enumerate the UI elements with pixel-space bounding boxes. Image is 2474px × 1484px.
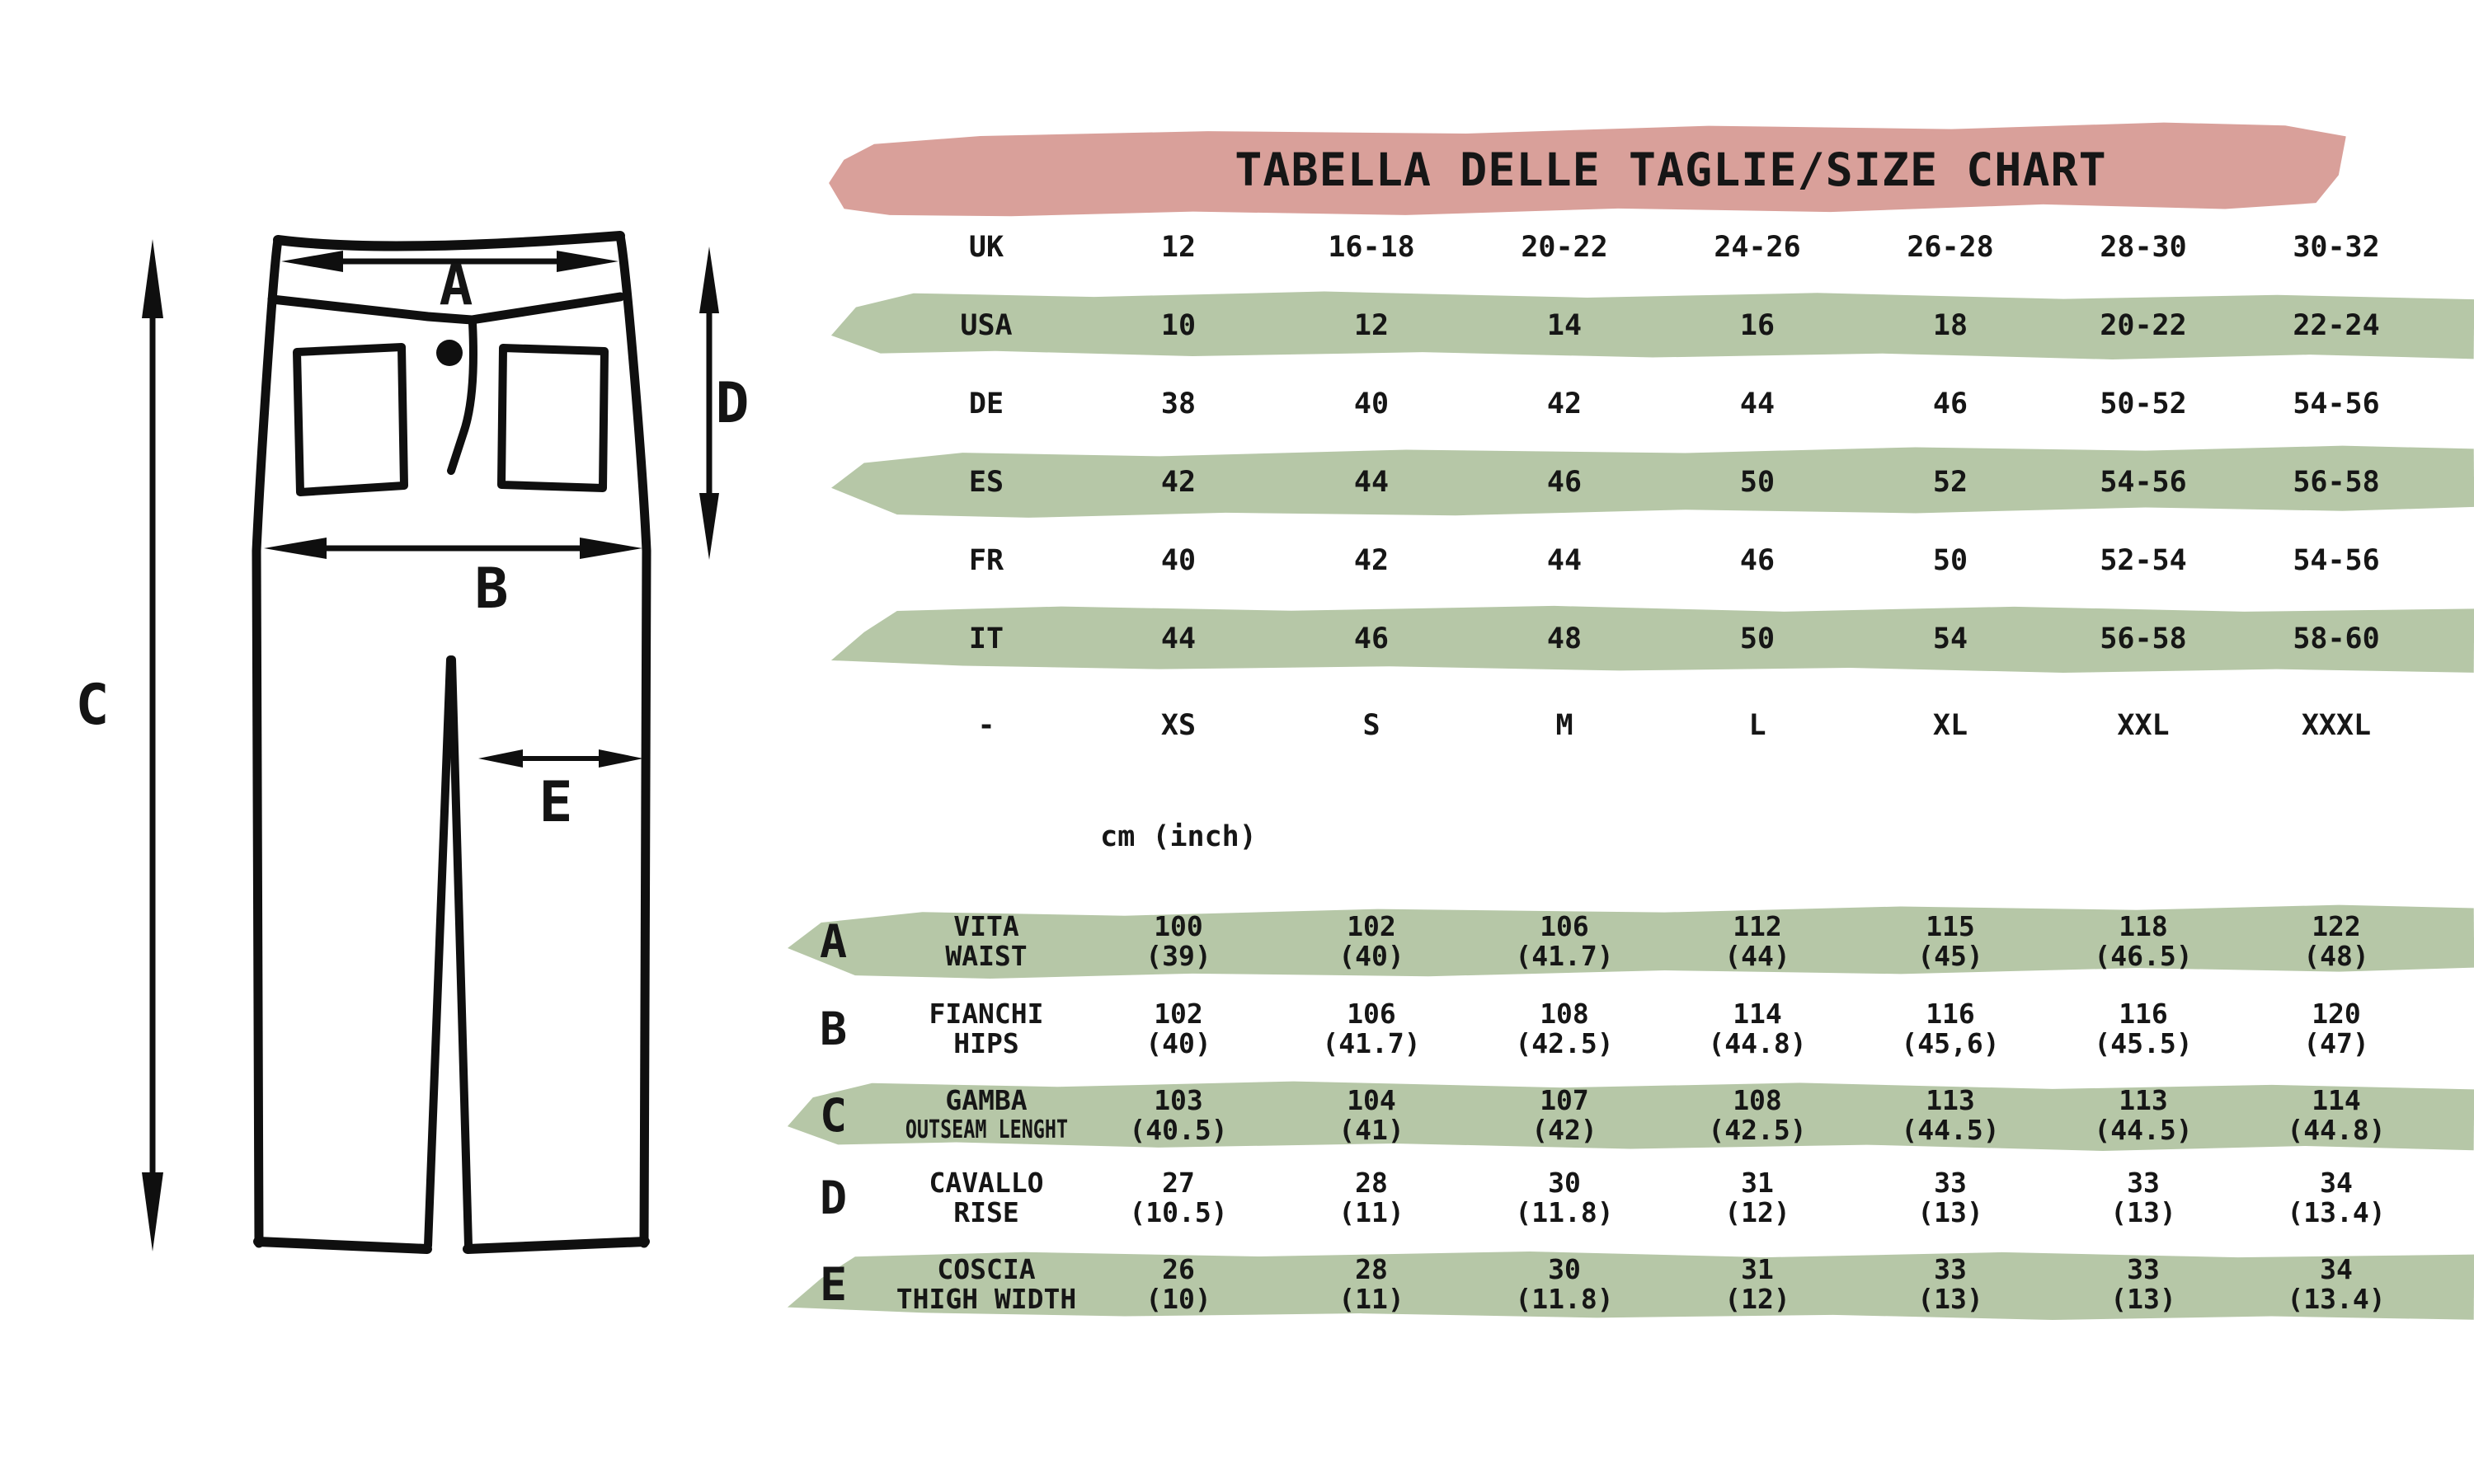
- value-cm: 31: [1741, 1168, 1774, 1198]
- label-italian: CAVALLO: [929, 1168, 1043, 1198]
- size-region-label: ES: [891, 445, 1082, 519]
- diagram-label-b: B: [475, 556, 509, 622]
- value-inch: (13.4): [2287, 1198, 2385, 1228]
- measure-value-cell: 115(45): [1854, 896, 2047, 987]
- value-inch: (12): [1724, 1284, 1790, 1314]
- measure-label: FIANCHIHIPS: [891, 984, 1082, 1074]
- measure-label: VITAWAIST: [891, 896, 1082, 987]
- diagram-label-d: D: [716, 371, 750, 436]
- measure-value-cell: 114(44.8): [2240, 1070, 2433, 1161]
- size-value-cell: 42: [1082, 445, 1275, 519]
- measurement-row-a: AVITAWAIST100(39)102(40)106(41.7)112(44)…: [808, 896, 2433, 987]
- size-row-de: DE384042444650-5254-56: [891, 367, 2433, 441]
- size-value-cell: 44: [1275, 445, 1468, 519]
- measure-value-cell: 107(42): [1468, 1070, 1661, 1161]
- measure-value-cell: 28(11): [1275, 1239, 1468, 1330]
- measure-value-cell: 114(44.8): [1661, 984, 1854, 1074]
- measure-value-cell: 33(13): [2047, 1153, 2240, 1243]
- value-cm: 26: [1162, 1255, 1195, 1284]
- size-value-cell: 46: [1661, 524, 1854, 598]
- size-value-cell: 46: [1468, 445, 1661, 519]
- size-value-cell: 54-56: [2047, 445, 2240, 519]
- label-italian: FIANCHI: [929, 999, 1043, 1029]
- size-region-label: FR: [891, 524, 1082, 598]
- unit-label: cm (inch): [1082, 820, 1275, 853]
- arrowhead-top: [699, 247, 719, 313]
- button-dot: [436, 340, 463, 366]
- measure-value-cell: 27(10.5): [1082, 1153, 1275, 1243]
- size-row-fr: FR404244465052-5454-56: [891, 524, 2433, 598]
- value-inch: (11.8): [1515, 1284, 1613, 1314]
- diagram-label-e: E: [539, 770, 573, 835]
- label-english: OUTSEAM LENGHT: [905, 1115, 1067, 1145]
- size-value-cell: 56-58: [2240, 445, 2433, 519]
- value-cm: 122: [2312, 912, 2361, 942]
- label-italian: VITA: [953, 912, 1018, 942]
- value-inch: (11): [1338, 1198, 1404, 1228]
- pocket-left: [297, 347, 404, 492]
- value-inch: (13): [1917, 1284, 1982, 1314]
- measure-value-cell: 28(11): [1275, 1153, 1468, 1243]
- value-cm: 27: [1162, 1168, 1195, 1198]
- value-inch: (46.5): [2094, 942, 2192, 971]
- size-value-cell: 22-24: [2240, 289, 2433, 363]
- measure-letter: B: [808, 984, 891, 1074]
- size-value-cell: 50-52: [2047, 367, 2240, 441]
- value-inch: (13.4): [2287, 1284, 2385, 1314]
- measure-value-cell: 108(42.5): [1468, 984, 1661, 1074]
- size-value-cell: 10: [1082, 289, 1275, 363]
- measure-value-cell: 33(13): [2047, 1239, 2240, 1330]
- size-region-label: UK: [891, 210, 1082, 284]
- size-value-cell: XL: [1854, 688, 2047, 763]
- value-cm: 118: [2119, 912, 2168, 942]
- value-inch: (40.5): [1129, 1115, 1227, 1145]
- value-inch: (44.8): [2287, 1115, 2385, 1145]
- pocket-right: [501, 348, 604, 488]
- right-inner-seam: [452, 660, 468, 1246]
- arrowhead-bottom: [142, 1172, 163, 1252]
- left-outer-seam: [256, 240, 278, 1243]
- value-cm: 102: [1154, 999, 1203, 1029]
- value-inch: (13): [1917, 1198, 1982, 1228]
- size-value-cell: XS: [1082, 688, 1275, 763]
- value-inch: (39): [1145, 942, 1211, 971]
- measure-value-cell: 34(13.4): [2240, 1153, 2433, 1243]
- size-value-cell: 56-58: [2047, 602, 2240, 676]
- measure-value-cell: 31(12): [1661, 1239, 1854, 1330]
- arrow-b: B: [264, 538, 642, 622]
- right-hem: [468, 1242, 645, 1249]
- measurement-row-c: CGAMBAOUTSEAM LENGHT103(40.5)104(41)107(…: [808, 1070, 2433, 1161]
- value-cm: 108: [1540, 999, 1589, 1029]
- size-region-label: -: [891, 688, 1082, 763]
- pants-diagram: A B C D E: [0, 0, 783, 1484]
- measure-label: CAVALLORISE: [891, 1153, 1082, 1243]
- measure-value-cell: 26(10): [1082, 1239, 1275, 1330]
- label-english: RISE: [953, 1198, 1018, 1228]
- value-inch: (45,6): [1901, 1029, 1999, 1059]
- size-value-cell: 44: [1468, 524, 1661, 598]
- left-hem: [258, 1242, 427, 1249]
- size-value-cell: 16: [1661, 289, 1854, 363]
- measure-letter: E: [808, 1239, 891, 1330]
- arrow-c: C: [76, 239, 163, 1252]
- size-value-cell: 20-22: [2047, 289, 2240, 363]
- size-value-cell: 54: [1854, 602, 2047, 676]
- size-value-cell: 14: [1468, 289, 1661, 363]
- label-english: HIPS: [953, 1029, 1018, 1059]
- size-value-cell: 50: [1661, 602, 1854, 676]
- value-cm: 106: [1347, 999, 1396, 1029]
- value-inch: (44): [1724, 942, 1790, 971]
- size-value-cell: 52-54: [2047, 524, 2240, 598]
- value-inch: (45): [1917, 942, 1982, 971]
- value-inch: (44.5): [2094, 1115, 2192, 1145]
- size-value-cell: 58-60: [2240, 602, 2433, 676]
- value-cm: 115: [1926, 912, 1975, 942]
- size-value-cell: 44: [1661, 367, 1854, 441]
- label-english: WAIST: [945, 942, 1027, 971]
- value-inch: (13): [2110, 1284, 2175, 1314]
- measure-value-cell: 112(44): [1661, 896, 1854, 987]
- arrowhead-top: [142, 239, 163, 318]
- measure-value-cell: 33(13): [1854, 1153, 2047, 1243]
- value-inch: (40): [1338, 942, 1404, 971]
- measure-value-cell: 102(40): [1275, 896, 1468, 987]
- measure-value-cell: 31(12): [1661, 1153, 1854, 1243]
- arrow-e: E: [478, 749, 643, 835]
- value-cm: 34: [2320, 1255, 2353, 1284]
- measure-value-cell: 30(11.8): [1468, 1239, 1661, 1330]
- value-cm: 112: [1733, 912, 1782, 942]
- value-cm: 28: [1355, 1255, 1388, 1284]
- size-value-cell: 40: [1275, 367, 1468, 441]
- measurement-row-d: DCAVALLORISE27(10.5)28(11)30(11.8)31(12)…: [808, 1153, 2433, 1243]
- measure-value-cell: 122(48): [2240, 896, 2433, 987]
- value-inch: (48): [2303, 942, 2368, 971]
- value-cm: 33: [2127, 1168, 2160, 1198]
- measure-value-cell: 106(41.7): [1468, 896, 1661, 987]
- size-value-cell: 42: [1468, 367, 1661, 441]
- size-value-cell: 12: [1275, 289, 1468, 363]
- measure-letter: C: [808, 1070, 891, 1161]
- value-inch: (42.5): [1515, 1029, 1613, 1059]
- size-value-cell: 24-26: [1661, 210, 1854, 284]
- value-inch: (47): [2303, 1029, 2368, 1059]
- page-title: TABELLA DELLE TAGLIE/SIZE CHART: [846, 147, 2474, 193]
- size-value-cell: 50: [1854, 524, 2047, 598]
- diagram-label-c: C: [76, 673, 110, 738]
- size-value-cell: L: [1661, 688, 1854, 763]
- value-cm: 107: [1540, 1086, 1589, 1115]
- measure-value-cell: 102(40): [1082, 984, 1275, 1074]
- arrow-d: D: [699, 247, 749, 560]
- size-value-cell: 50: [1661, 445, 1854, 519]
- label-italian: COSCIA: [937, 1255, 1035, 1284]
- arrowhead-left: [478, 749, 523, 768]
- measurement-row-e: ECOSCIATHIGH WIDTH26(10)28(11)30(11.8)31…: [808, 1239, 2433, 1330]
- measure-value-cell: 116(45,6): [1854, 984, 2047, 1074]
- value-inch: (42.5): [1708, 1115, 1806, 1145]
- value-inch: (44.5): [1901, 1115, 1999, 1145]
- value-cm: 33: [1934, 1255, 1967, 1284]
- left-inner-seam: [428, 660, 450, 1246]
- size-value-cell: 46: [1854, 367, 2047, 441]
- size-value-cell: XXXL: [2240, 688, 2433, 763]
- size-value-cell: 26-28: [1854, 210, 2047, 284]
- value-inch: (10): [1145, 1284, 1211, 1314]
- value-cm: 113: [1926, 1086, 1975, 1115]
- value-cm: 33: [2127, 1255, 2160, 1284]
- size-region-label: USA: [891, 289, 1082, 363]
- size-row-usa: USA101214161820-2222-24: [891, 289, 2433, 363]
- measure-value-cell: 104(41): [1275, 1070, 1468, 1161]
- measure-value-cell: 33(13): [1854, 1239, 2047, 1330]
- arrowhead-bottom: [699, 493, 719, 560]
- size-row-intl: -XSSMLXLXXLXXXL: [891, 688, 2433, 763]
- value-cm: 30: [1548, 1168, 1581, 1198]
- size-row-es: ES424446505254-5656-58: [891, 445, 2433, 519]
- measurement-row-b: BFIANCHIHIPS102(40)106(41.7)108(42.5)114…: [808, 984, 2433, 1074]
- waistband-top-line: [278, 236, 620, 246]
- value-cm: 114: [2312, 1086, 2361, 1115]
- size-value-cell: 44: [1082, 602, 1275, 676]
- measure-value-cell: 113(44.5): [2047, 1070, 2240, 1161]
- value-cm: 31: [1741, 1255, 1774, 1284]
- value-cm: 116: [1926, 999, 1975, 1029]
- value-cm: 104: [1347, 1086, 1396, 1115]
- label-english: THIGH WIDTH: [896, 1284, 1077, 1314]
- value-inch: (44.8): [1708, 1029, 1806, 1059]
- value-inch: (11): [1338, 1284, 1404, 1314]
- value-cm: 116: [2119, 999, 2168, 1029]
- value-cm: 120: [2312, 999, 2361, 1029]
- size-value-cell: 46: [1275, 602, 1468, 676]
- measure-value-cell: 30(11.8): [1468, 1153, 1661, 1243]
- value-cm: 100: [1154, 912, 1203, 942]
- size-value-cell: 16-18: [1275, 210, 1468, 284]
- value-inch: (41): [1338, 1115, 1404, 1145]
- arrowhead-right: [580, 538, 642, 559]
- size-row-it: IT444648505456-5858-60: [891, 602, 2433, 676]
- size-value-cell: 40: [1082, 524, 1275, 598]
- size-value-cell: 30-32: [2240, 210, 2433, 284]
- measure-value-cell: 120(47): [2240, 984, 2433, 1074]
- measure-value-cell: 106(41.7): [1275, 984, 1468, 1074]
- label-italian: GAMBA: [945, 1086, 1027, 1115]
- value-inch: (41.7): [1322, 1029, 1420, 1059]
- value-cm: 33: [1934, 1168, 1967, 1198]
- value-inch: (10.5): [1129, 1198, 1227, 1228]
- size-value-cell: 52: [1854, 445, 2047, 519]
- measure-label: COSCIATHIGH WIDTH: [891, 1239, 1082, 1330]
- arrowhead-right: [557, 251, 618, 272]
- size-value-cell: S: [1275, 688, 1468, 763]
- value-inch: (45.5): [2094, 1029, 2192, 1059]
- arrowhead-left: [281, 251, 343, 272]
- size-value-cell: 18: [1854, 289, 2047, 363]
- measure-value-cell: 116(45.5): [2047, 984, 2240, 1074]
- value-inch: (11.8): [1515, 1198, 1613, 1228]
- measure-value-cell: 103(40.5): [1082, 1070, 1275, 1161]
- size-region-label: IT: [891, 602, 1082, 676]
- value-cm: 34: [2320, 1168, 2353, 1198]
- size-region-label: DE: [891, 367, 1082, 441]
- value-cm: 114: [1733, 999, 1782, 1029]
- size-value-cell: 54-56: [2240, 367, 2433, 441]
- value-inch: (13): [2110, 1198, 2175, 1228]
- diagram-label-a: A: [440, 253, 473, 318]
- value-cm: 28: [1355, 1168, 1388, 1198]
- value-cm: 103: [1154, 1086, 1203, 1115]
- value-cm: 106: [1540, 912, 1589, 942]
- value-cm: 108: [1733, 1086, 1782, 1115]
- size-value-cell: 20-22: [1468, 210, 1661, 284]
- arrowhead-left: [264, 538, 327, 559]
- value-cm: 113: [2119, 1086, 2168, 1115]
- size-value-cell: 54-56: [2240, 524, 2433, 598]
- measure-letter: D: [808, 1153, 891, 1243]
- size-value-cell: XXL: [2047, 688, 2240, 763]
- value-inch: (12): [1724, 1198, 1790, 1228]
- size-value-cell: 12: [1082, 210, 1275, 284]
- size-value-cell: M: [1468, 688, 1661, 763]
- value-inch: (40): [1145, 1029, 1211, 1059]
- size-value-cell: 28-30: [2047, 210, 2240, 284]
- right-outer-seam: [620, 236, 647, 1243]
- size-row-uk: UK1216-1820-2224-2626-2828-3030-32: [891, 210, 2433, 284]
- measure-value-cell: 108(42.5): [1661, 1070, 1854, 1161]
- measure-label: GAMBAOUTSEAM LENGHT: [891, 1070, 1082, 1161]
- size-value-cell: 42: [1275, 524, 1468, 598]
- size-value-cell: 48: [1468, 602, 1661, 676]
- measure-value-cell: 34(13.4): [2240, 1239, 2433, 1330]
- measure-letter: A: [808, 896, 891, 987]
- value-inch: (41.7): [1515, 942, 1613, 971]
- arrowhead-right: [599, 749, 643, 768]
- value-inch: (42): [1531, 1115, 1597, 1145]
- pants-outline: [256, 236, 647, 1249]
- measure-value-cell: 113(44.5): [1854, 1070, 2047, 1161]
- measure-value-cell: 100(39): [1082, 896, 1275, 987]
- value-cm: 102: [1347, 912, 1396, 942]
- measure-value-cell: 118(46.5): [2047, 896, 2240, 987]
- size-chart-sheet: A B C D E T: [0, 0, 2474, 1484]
- value-cm: 30: [1548, 1255, 1581, 1284]
- size-value-cell: 38: [1082, 367, 1275, 441]
